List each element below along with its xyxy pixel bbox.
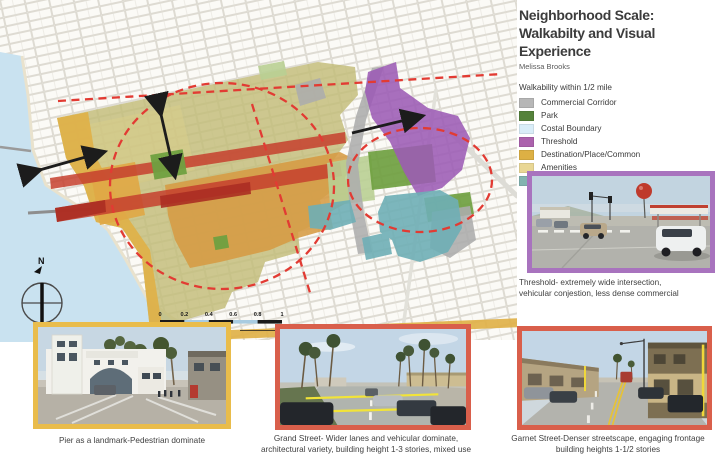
caption-pier: Pier as a landmark-Pedestrian dominate — [18, 436, 246, 447]
svg-text:0.6: 0.6 — [229, 312, 237, 318]
svg-text:0: 0 — [158, 312, 161, 318]
legend-swatch-commercial-corridor — [519, 98, 534, 108]
legend-swatch-threshold — [519, 137, 534, 147]
svg-text:0.8: 0.8 — [254, 312, 262, 318]
page-title-line1: Neighborhood Scale: — [519, 6, 715, 24]
legend-swatch-costal-boundary — [519, 124, 534, 134]
legend-swatch-destination — [519, 150, 534, 160]
photo-garnet-street — [517, 326, 712, 430]
author-name: Melissa Brooks — [519, 62, 715, 71]
legend-item-costal-boundary: Costal Boundary — [519, 124, 715, 134]
threshold-photo-art — [532, 176, 710, 268]
legend-title: Walkability within 1/2 mile — [519, 83, 715, 92]
legend-item-destination: Destination/Place/Common — [519, 150, 715, 160]
photo-pier-landmark — [33, 322, 231, 429]
legend-item-park: Park — [519, 111, 715, 121]
grand-photo-art — [280, 329, 466, 425]
caption-grand: Grand Street- Wider lanes and vehicular … — [250, 434, 482, 456]
photo-threshold-intersection — [527, 171, 715, 273]
legend-item-label: Park — [541, 111, 558, 120]
svg-text:0.2: 0.2 — [181, 312, 189, 318]
svg-text:0.4: 0.4 — [205, 312, 214, 318]
right-building — [188, 351, 226, 400]
caption-garnet: Garnet Street-Denser streetscape, engagi… — [498, 434, 718, 456]
map-canvas: N 0 0.2 0.4 0.6 0.8 1 miles — [0, 0, 517, 342]
garnet-photo-art — [522, 331, 707, 425]
legend-item-label: Costal Boundary — [541, 124, 602, 133]
compass-north-label: N — [38, 256, 45, 266]
page-title-line2: Walkabilty and Visual Experience — [519, 24, 715, 60]
legend-item-label: Threshold — [541, 137, 577, 146]
legend-item-threshold: Threshold — [519, 137, 715, 147]
legend-item-label: Destination/Place/Common — [541, 150, 640, 159]
svg-text:1: 1 — [280, 312, 283, 318]
white-suv — [654, 226, 710, 261]
parked-car — [94, 385, 116, 395]
photo-grand-street — [275, 324, 471, 430]
walkability-map: N 0 0.2 0.4 0.6 0.8 1 miles — [0, 0, 517, 342]
legend-item-label: Commercial Corridor — [541, 98, 617, 107]
pier-photo-art — [38, 327, 226, 424]
caption-threshold: Threshold- extremely wide intersection, … — [519, 278, 717, 300]
legend-swatch-park — [519, 111, 534, 121]
right-panel: Neighborhood Scale: Walkabilty and Visua… — [519, 6, 715, 189]
legend-item-commercial-corridor: Commercial Corridor — [519, 98, 715, 108]
